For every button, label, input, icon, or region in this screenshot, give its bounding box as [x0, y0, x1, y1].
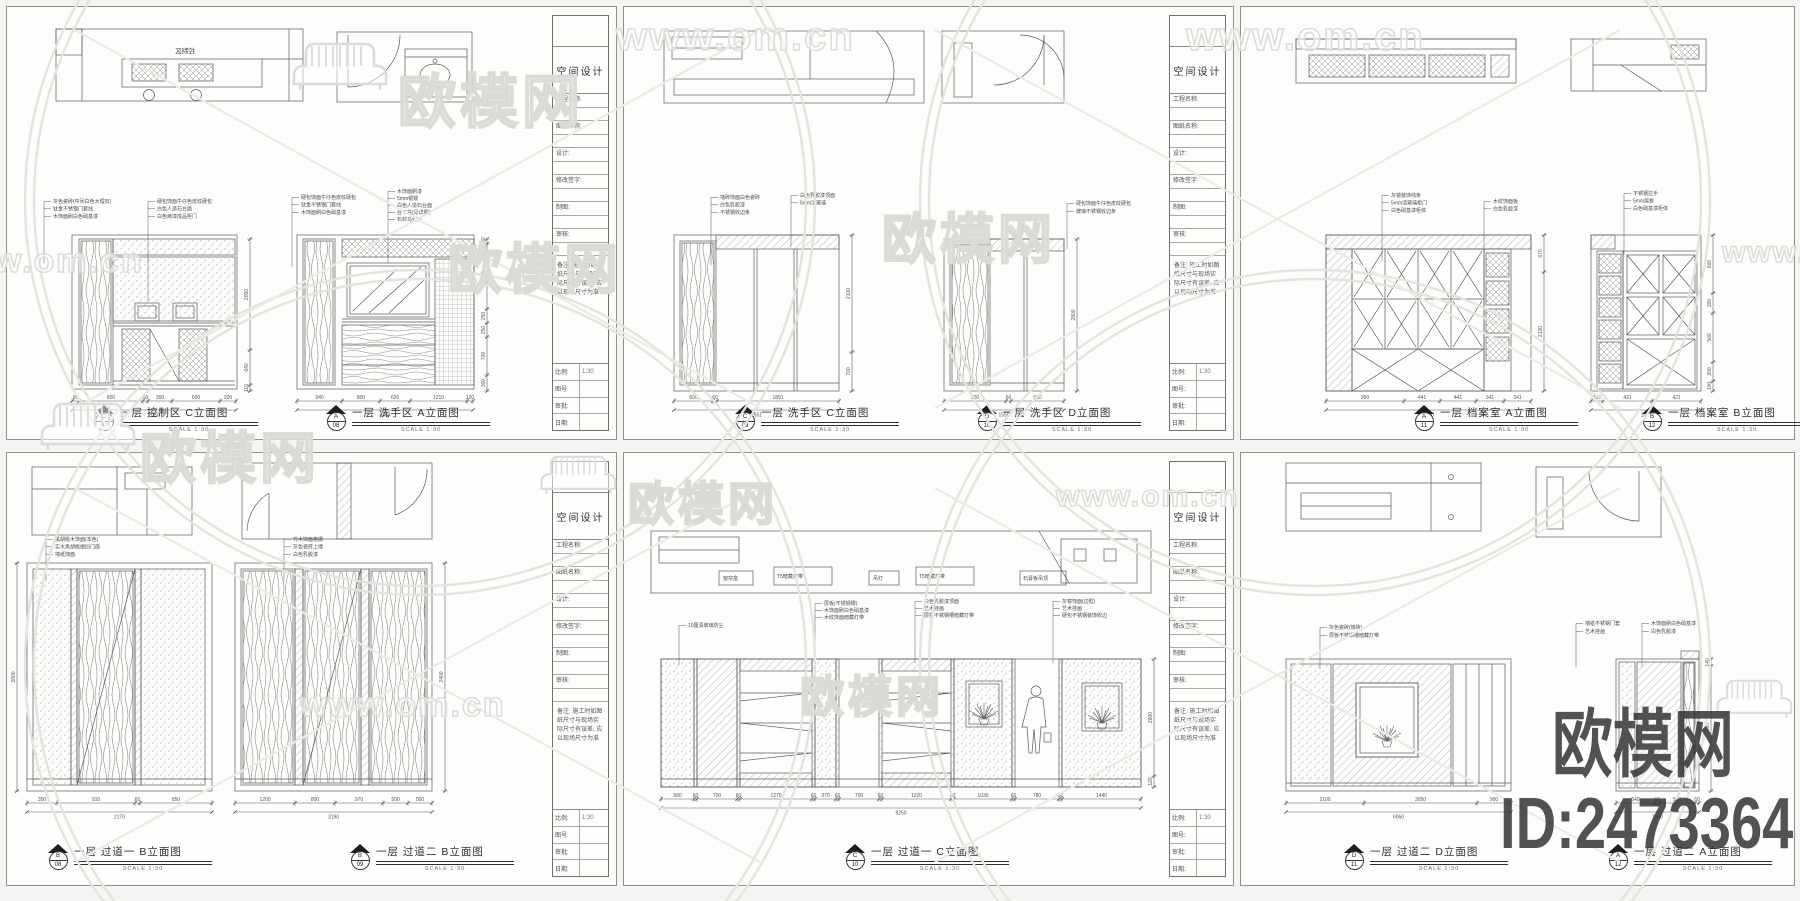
svg-text:T5暗藏灯带: T5暗藏灯带: [777, 573, 803, 580]
annotations-b12: 不锈钢拉手5mm层板白色硝基漆柜体: [1624, 190, 1668, 255]
svg-text:白色乳胶漆: 白色乳胶漆: [720, 202, 745, 209]
svg-text:60: 60: [736, 793, 742, 799]
svg-text:灰色瓷砖(中间白色大理石): 灰色瓷砖(中间白色大理石): [53, 198, 112, 205]
plan-washarea-c: [664, 31, 924, 103]
svg-text:100: 100: [1593, 395, 1602, 401]
svg-text:T5暗藏灯带: T5暗藏灯带: [919, 573, 945, 580]
svg-text:不锈钢拉手: 不锈钢拉手: [1633, 190, 1658, 197]
svg-text:石材马赛克: 石材马赛克: [397, 216, 422, 223]
drawing-label-a11: A11 一层 档案室 A立面图 SCALE 1:30: [1413, 405, 1578, 433]
svg-text:60: 60: [1654, 797, 1660, 803]
svg-text:800: 800: [107, 395, 116, 401]
svg-text:370: 370: [821, 793, 830, 799]
svg-text:灰镜装饰线条: 灰镜装饰线条: [1391, 192, 1421, 199]
drawing-scale: SCALE 1:30: [120, 427, 258, 433]
svg-text:690: 690: [1033, 395, 1042, 401]
svg-text:5mm清玻璃: 5mm清玻璃: [800, 200, 826, 207]
svg-text:9250: 9250: [895, 811, 906, 817]
svg-text:441: 441: [1418, 395, 1427, 401]
svg-text:341: 341: [1486, 395, 1495, 401]
dims-b08-v: 2800: [11, 561, 20, 792]
svg-text:2800: 2800: [1148, 712, 1154, 723]
svg-text:900: 900: [1490, 797, 1499, 803]
drawing-label-c09: C09 一层 洗手区 C立面图 SCALE 1:30: [734, 405, 899, 433]
svg-text:白色乳胶漆: 白色乳胶漆: [1493, 206, 1518, 213]
svg-text:钛金不锈钢门套线: 钛金不锈钢门套线: [53, 206, 93, 213]
svg-text:实木黑胡桃做旧门扇: 实木黑胡桃做旧门扇: [55, 544, 100, 551]
svg-text:800: 800: [357, 395, 366, 401]
svg-text:200: 200: [1707, 367, 1713, 376]
svg-text:灰色瓷砖(墙砖): 灰色瓷砖(墙砖): [1329, 624, 1363, 631]
svg-text:3050: 3050: [1415, 797, 1426, 803]
svg-text:1270: 1270: [770, 793, 781, 799]
drawing-label-d11: D11 一层 过道二 D立面图 SCALE 1:30: [1343, 844, 1508, 872]
dims-a08-v: 1001200250250700300: [481, 237, 490, 393]
svg-text:2400: 2400: [439, 671, 445, 682]
svg-text:120: 120: [466, 395, 475, 401]
svg-text:540: 540: [1631, 797, 1640, 803]
elevation-d10: [944, 239, 1064, 391]
svg-text:层板不锈钢槽暗藏灯带: 层板不锈钢槽暗藏灯带: [924, 612, 974, 619]
svg-text:1160: 1160: [1652, 815, 1663, 821]
annotations-d11: 灰色瓷砖(墙砖)层板不锈钢槽暗藏灯带: [1320, 624, 1379, 669]
annotations-c10-mid2: 白色乳胶漆顶面艺术挂画层板不锈钢槽暗藏灯带: [915, 598, 974, 663]
svg-text:500: 500: [1673, 797, 1682, 803]
titleblock-notes: 备注: 施工时如图纸尺寸与现场实际尺寸有误差, 应以现场尺寸为准: [1170, 256, 1225, 364]
svg-text:木饰面刷漆: 木饰面刷漆: [397, 188, 422, 195]
svg-text:200: 200: [224, 395, 233, 401]
plan-washarea-d: [942, 31, 1064, 103]
svg-text:2800: 2800: [11, 671, 17, 682]
svg-text:1200: 1200: [481, 271, 487, 282]
titleblock-notes: 备注: 施工时如图纸尺寸与现场实际尺寸有误差, 应以现场尺寸为准: [1170, 702, 1225, 810]
svg-text:1030: 1030: [977, 793, 988, 799]
dims-b09-v: 2400: [439, 561, 448, 792]
svg-text:600: 600: [1707, 260, 1713, 269]
plan-corridor-2: [242, 463, 432, 539]
person-figure: [1022, 686, 1051, 753]
svg-text:60: 60: [143, 395, 149, 401]
svg-text:2100: 2100: [846, 288, 852, 299]
svg-text:580: 580: [673, 793, 682, 799]
svg-text:层板(不锈钢槽): 层板(不锈钢槽): [824, 600, 858, 607]
svg-text:500: 500: [391, 797, 400, 803]
svg-text:700: 700: [855, 793, 864, 799]
svg-text:墙砖饰面白色瓷砖: 墙砖饰面白色瓷砖: [720, 194, 760, 201]
svg-text:墙纸不锈钢门套: 墙纸不锈钢门套: [1585, 620, 1620, 627]
title-block: 空间设计工程名称:图纸名称:设计:修改签字:制图:审核:备注: 施工时如图纸尺寸…: [552, 15, 609, 431]
elevation-a12: [1616, 651, 1699, 791]
svg-text:1220: 1220: [911, 793, 922, 799]
svg-text:620: 620: [391, 395, 400, 401]
svg-text:300: 300: [156, 395, 165, 401]
dims-b12-v: 600200500200100: [1707, 233, 1716, 392]
dims-d11-h: 210030509006050: [1284, 797, 1512, 820]
svg-text:60: 60: [135, 797, 141, 803]
svg-text:700: 700: [846, 367, 852, 376]
svg-text:670: 670: [1538, 249, 1544, 258]
plan-corridor-1: [32, 467, 192, 535]
drawing-label-b08: B08 一层 过道一 B立面图 SCALE 1:30: [47, 844, 212, 872]
svg-text:墙纸饰面: 墙纸饰面: [55, 551, 75, 558]
svg-text:421: 421: [1623, 395, 1632, 401]
elevation-c10: [661, 659, 1141, 787]
svg-text:木饰面刷白色硝基漆: 木饰面刷白色硝基漆: [53, 213, 98, 220]
svg-text:石膏板吊顶: 石膏板吊顶: [1023, 575, 1048, 582]
svg-text:500: 500: [1707, 333, 1713, 342]
svg-text:800: 800: [311, 797, 320, 803]
annotations-c10-right: 灰镜饰面(边框)艺术挂画硬包不锈钢装饰收边: [1053, 598, 1107, 663]
sheet-corridor-two: 灰色瓷砖(墙砖)层板不锈钢槽暗藏灯带 墙纸不锈钢门套艺术挂画 木饰面刷白色硝基漆…: [1240, 452, 1795, 886]
dims-c07-v: 2050640110: [244, 237, 253, 392]
svg-text:950: 950: [1361, 395, 1370, 401]
elevation-b12: [1591, 235, 1701, 391]
svg-text:700: 700: [713, 793, 722, 799]
drawing-label-a12: A12 一层 过道二 A立面图 SCALE 1:30: [1607, 844, 1772, 872]
annotations-a12-right: 木饰面刷白色硝基漆白色乳胶漆: [1642, 620, 1696, 667]
svg-text:2660: 2660: [1705, 723, 1711, 734]
svg-text:艺术挂画: 艺术挂画: [1585, 628, 1605, 635]
svg-text:60: 60: [835, 793, 841, 799]
sheet-archive-room: 灰镜装饰线条5mm清玻璃柜门白色硝基漆柜体 木纹饰面板白色乳胶漆 不锈钢拉手5m…: [1240, 6, 1795, 440]
title-block: 空间设计工程名称:图纸名称:设计:修改签字:制图:审核:备注: 施工时如图纸尺寸…: [1169, 15, 1226, 431]
svg-text:白色乳胶漆: 白色乳胶漆: [1651, 628, 1676, 635]
svg-text:250: 250: [481, 312, 487, 321]
annotations-a11: 灰镜装饰线条5mm清玻璃柜门白色硝基漆柜体: [1382, 192, 1427, 261]
svg-text:350: 350: [38, 797, 47, 803]
annotations-c09-left: 墙砖饰面白色瓷砖白色乳胶漆不锈钢收边条: [711, 194, 760, 265]
svg-text:250: 250: [481, 326, 487, 335]
svg-text:441: 441: [1454, 395, 1463, 401]
annotations-a12-left: 墙纸不锈钢门套艺术挂画: [1576, 620, 1620, 667]
svg-text:白色硝基漆柜体: 白色硝基漆柜体: [1391, 207, 1426, 214]
elevation-a11: [1326, 235, 1531, 391]
plan-corridor-two-2: [1536, 467, 1661, 537]
svg-text:3190: 3190: [328, 815, 339, 821]
svg-text:黑胡桃木饰面(本色): 黑胡桃木饰面(本色): [55, 536, 99, 543]
drawing-label-d10: D10 一层 洗手区 D立面图 SCALE 1:30: [976, 405, 1141, 433]
svg-text:60: 60: [1694, 797, 1700, 803]
titleblock-notes: 备注: 施工时如图纸尺寸与现场实际尺寸有误差, 应以现场尺寸为准: [553, 702, 608, 810]
svg-text:100: 100: [481, 237, 487, 246]
svg-text:木饰面刷白色硝基漆: 木饰面刷白色硝基漆: [1651, 620, 1696, 627]
svg-text:台下盆(见详图): 台下盆(见详图): [397, 209, 431, 216]
svg-text:421: 421: [1672, 395, 1681, 401]
drawing-title: 一层 控制区 C立面图: [120, 405, 258, 420]
plan-control-area: 控制区: [56, 29, 303, 101]
svg-text:60: 60: [950, 793, 956, 799]
svg-text:竹木饰面格栅: 竹木饰面格栅: [293, 536, 323, 543]
svg-text:850: 850: [172, 797, 181, 803]
ceiling-plan-corridor: 窗帘盒 T5暗藏灯带 吊灯 T5暗藏灯带 石膏板吊顶: [651, 531, 1151, 593]
sheet-corridor-c: 窗帘盒 T5暗藏灯带 吊灯 T5暗藏灯带 石膏板吊顶: [623, 452, 1234, 886]
elevation-a08: [297, 235, 474, 389]
svg-text:5mm清玻璃柜门: 5mm清玻璃柜门: [1391, 200, 1427, 207]
title-block: 空间设计工程名称:图纸名称:设计:修改签字:制图:审核:备注: 施工时如图纸尺寸…: [1169, 461, 1226, 877]
svg-text:1891: 1891: [772, 395, 783, 401]
dims-a12-h: 54060500601160: [1614, 797, 1700, 820]
svg-text:艺术挂画: 艺术挂画: [1062, 605, 1082, 612]
svg-text:艺术挂画: 艺术挂画: [924, 605, 944, 612]
drawing-symbol: C07: [93, 405, 115, 431]
plan-washarea: [337, 32, 472, 102]
svg-text:吊灯: 吊灯: [873, 575, 883, 582]
plan-archive-a: [1296, 39, 1516, 83]
svg-text:窗帘盒: 窗帘盒: [723, 575, 738, 582]
dims-a11-v: 6702130: [1538, 233, 1547, 392]
svg-text:140: 140: [1705, 658, 1711, 667]
svg-text:木纹饰面暗藏灯带: 木纹饰面暗藏灯带: [824, 614, 864, 621]
dims-a12-v: 1402660: [1705, 657, 1714, 792]
elevation-c09: [674, 235, 839, 391]
drawing-label-c07: C07 一层 控制区 C立面图 SCALE 1:30: [93, 405, 258, 433]
elevation-b09: [235, 563, 432, 791]
svg-text:120: 120: [1148, 777, 1154, 786]
svg-text:500: 500: [416, 797, 425, 803]
titleblock-header: 空间设计: [553, 47, 608, 94]
svg-text:1210: 1210: [433, 395, 444, 401]
svg-text:硬包不锈钢装饰收边: 硬包不锈钢装饰收边: [1062, 612, 1107, 619]
sheet-corridor-b: 黑胡桃木饰面(本色)实木黑胡桃做旧门扇墙纸饰面 竹木饰面格栅灰色瓷砖上墙白色乳胶…: [6, 452, 617, 886]
plan-corridor-two-1: [1286, 463, 1481, 531]
svg-text:910: 910: [92, 797, 101, 803]
svg-text:木饰面刷白色硝基漆: 木饰面刷白色硝基漆: [824, 607, 869, 614]
svg-text:60: 60: [1011, 793, 1017, 799]
svg-text:60: 60: [811, 793, 817, 799]
svg-text:硬包饰面牛仔色皮纹硬包: 硬包饰面牛仔色皮纹硬包: [301, 194, 356, 201]
svg-text:800: 800: [971, 395, 980, 401]
svg-text:玻璃不锈钢收边条: 玻璃不锈钢收边条: [1076, 208, 1116, 215]
svg-text:700: 700: [481, 352, 487, 361]
svg-text:灰镜饰面(边框): 灰镜饰面(边框): [1062, 598, 1096, 605]
svg-text:640: 640: [244, 363, 250, 372]
svg-text:1200: 1200: [259, 797, 270, 803]
svg-text:600: 600: [689, 395, 698, 401]
svg-text:60: 60: [878, 793, 884, 799]
svg-text:木饰面刷白色硝基漆: 木饰面刷白色硝基漆: [301, 209, 346, 216]
svg-text:940: 940: [315, 395, 324, 401]
sheet-control-washarea: 控制区 灰色瓷砖(中间白色大理石)钛金不锈钢门套线木饰面刷白色硝基漆 硬包饰面牛…: [6, 6, 617, 440]
drawing-label-b09: B09 一层 过道二 B立面图 SCALE 1:30: [349, 844, 514, 872]
svg-text:970: 970: [355, 797, 364, 803]
svg-text:白色乳胶漆: 白色乳胶漆: [293, 551, 318, 558]
annotations-d10-right: 硬包饰面牛仔色皮纹硬包玻璃不锈钢收边条: [1067, 200, 1131, 249]
dims-c09-v: 2100700: [846, 233, 855, 392]
svg-text:100: 100: [1707, 382, 1713, 391]
svg-text:780: 780: [1033, 793, 1042, 799]
svg-text:白色硝基漆柜体: 白色硝基漆柜体: [1633, 205, 1668, 212]
svg-text:白色乳胶漆顶面: 白色乳胶漆顶面: [924, 598, 959, 605]
svg-text:600: 600: [192, 395, 201, 401]
svg-text:60: 60: [693, 793, 699, 799]
svg-text:60: 60: [1006, 395, 1012, 401]
svg-text:300: 300: [481, 379, 487, 388]
svg-text:白色人造石台面: 白色人造石台面: [397, 202, 432, 209]
svg-text:6050: 6050: [1393, 815, 1404, 821]
dims-b09-h: 12008009705005003190: [233, 797, 433, 820]
svg-text:白色烤漆成品柜门: 白色烤漆成品柜门: [157, 213, 197, 220]
svg-text:2170: 2170: [114, 815, 125, 821]
svg-text:2100: 2100: [1319, 797, 1330, 803]
dims-d10-v: 2800: [1071, 237, 1080, 392]
plan-room-label: 控制区: [175, 46, 195, 55]
elevation-c07: [72, 235, 237, 389]
svg-text:60: 60: [1058, 793, 1064, 799]
svg-text:200: 200: [1707, 299, 1713, 308]
svg-text:不锈钢收边条: 不锈钢收边条: [720, 209, 750, 216]
svg-text:硬包饰面牛仔色皮纹硬包: 硬包饰面牛仔色皮纹硬包: [157, 198, 212, 205]
svg-text:110: 110: [244, 384, 250, 392]
svg-text:60: 60: [712, 395, 718, 401]
svg-text:5mm银镜: 5mm银镜: [397, 195, 418, 202]
drawing-label-a08: A08 一层 洗手区 A立面图 SCALE 1:30: [325, 405, 490, 433]
drawing-label-b12: B12 一层 档案室 B立面图 SCALE 1:30: [1641, 405, 1800, 433]
svg-text:90: 90: [73, 395, 79, 401]
titleblock-header: 空间设计: [1170, 493, 1225, 540]
svg-text:白色人造石台面: 白色人造石台面: [157, 206, 192, 213]
titleblock-header: 空间设计: [553, 493, 608, 540]
dims-c10-h: 5806070060127060370607006012206010306078…: [659, 793, 1142, 816]
elevation-b08: [27, 563, 212, 791]
dims-c10-v: 2800120: [1148, 657, 1157, 788]
svg-text:白色乳胶漆顶面: 白色乳胶漆顶面: [800, 192, 835, 199]
elevation-d11: [1286, 659, 1511, 791]
svg-text:10厘清玻璃防尘: 10厘清玻璃防尘: [688, 622, 724, 629]
titleblock-notes: 备注: 施工时如图纸尺寸与现场实际尺寸有误差, 应以现场尺寸为准: [553, 256, 608, 364]
svg-text:341: 341: [1513, 395, 1522, 401]
svg-text:2050: 2050: [244, 289, 250, 300]
dims-b08-h: 350910608502170: [25, 797, 213, 820]
svg-text:1440: 1440: [1096, 793, 1107, 799]
svg-text:木纹饰面板: 木纹饰面板: [1493, 198, 1518, 205]
svg-text:钛金不锈钢门套线: 钛金不锈钢门套线: [301, 202, 341, 209]
drawing-label-c10: C10 一层 过道一 C立面图 SCALE 1:30: [844, 844, 1009, 872]
svg-text:灰色瓷砖上墙: 灰色瓷砖上墙: [293, 544, 323, 551]
svg-text:层板不锈钢槽暗藏灯带: 层板不锈钢槽暗藏灯带: [1329, 632, 1379, 639]
svg-text:2800: 2800: [1071, 309, 1077, 320]
svg-text:硬包饰面牛仔色皮纹硬包: 硬包饰面牛仔色皮纹硬包: [1076, 200, 1131, 207]
title-block: 空间设计工程名称:图纸名称:设计:修改签字:制图:审核:备注: 施工时如图纸尺寸…: [552, 461, 609, 877]
svg-text:2130: 2130: [1538, 326, 1544, 337]
annotations-c10-mid1: 层板(不锈钢槽)木饰面刷白色硝基漆木纹饰面暗藏灯带: [815, 600, 869, 663]
plan-archive-b: [1571, 39, 1706, 91]
svg-text:5mm层板: 5mm层板: [1633, 198, 1654, 205]
titleblock-header: 空间设计: [1170, 47, 1225, 94]
sheet-washarea-cd: 墙砖饰面白色瓷砖白色乳胶漆不锈钢收边条 白色乳胶漆顶面5mm清玻璃 硬包饰面牛仔…: [623, 6, 1234, 440]
cad-drawing-page: { "page": {"background":"#f4f4f2","sheet…: [0, 0, 1800, 901]
